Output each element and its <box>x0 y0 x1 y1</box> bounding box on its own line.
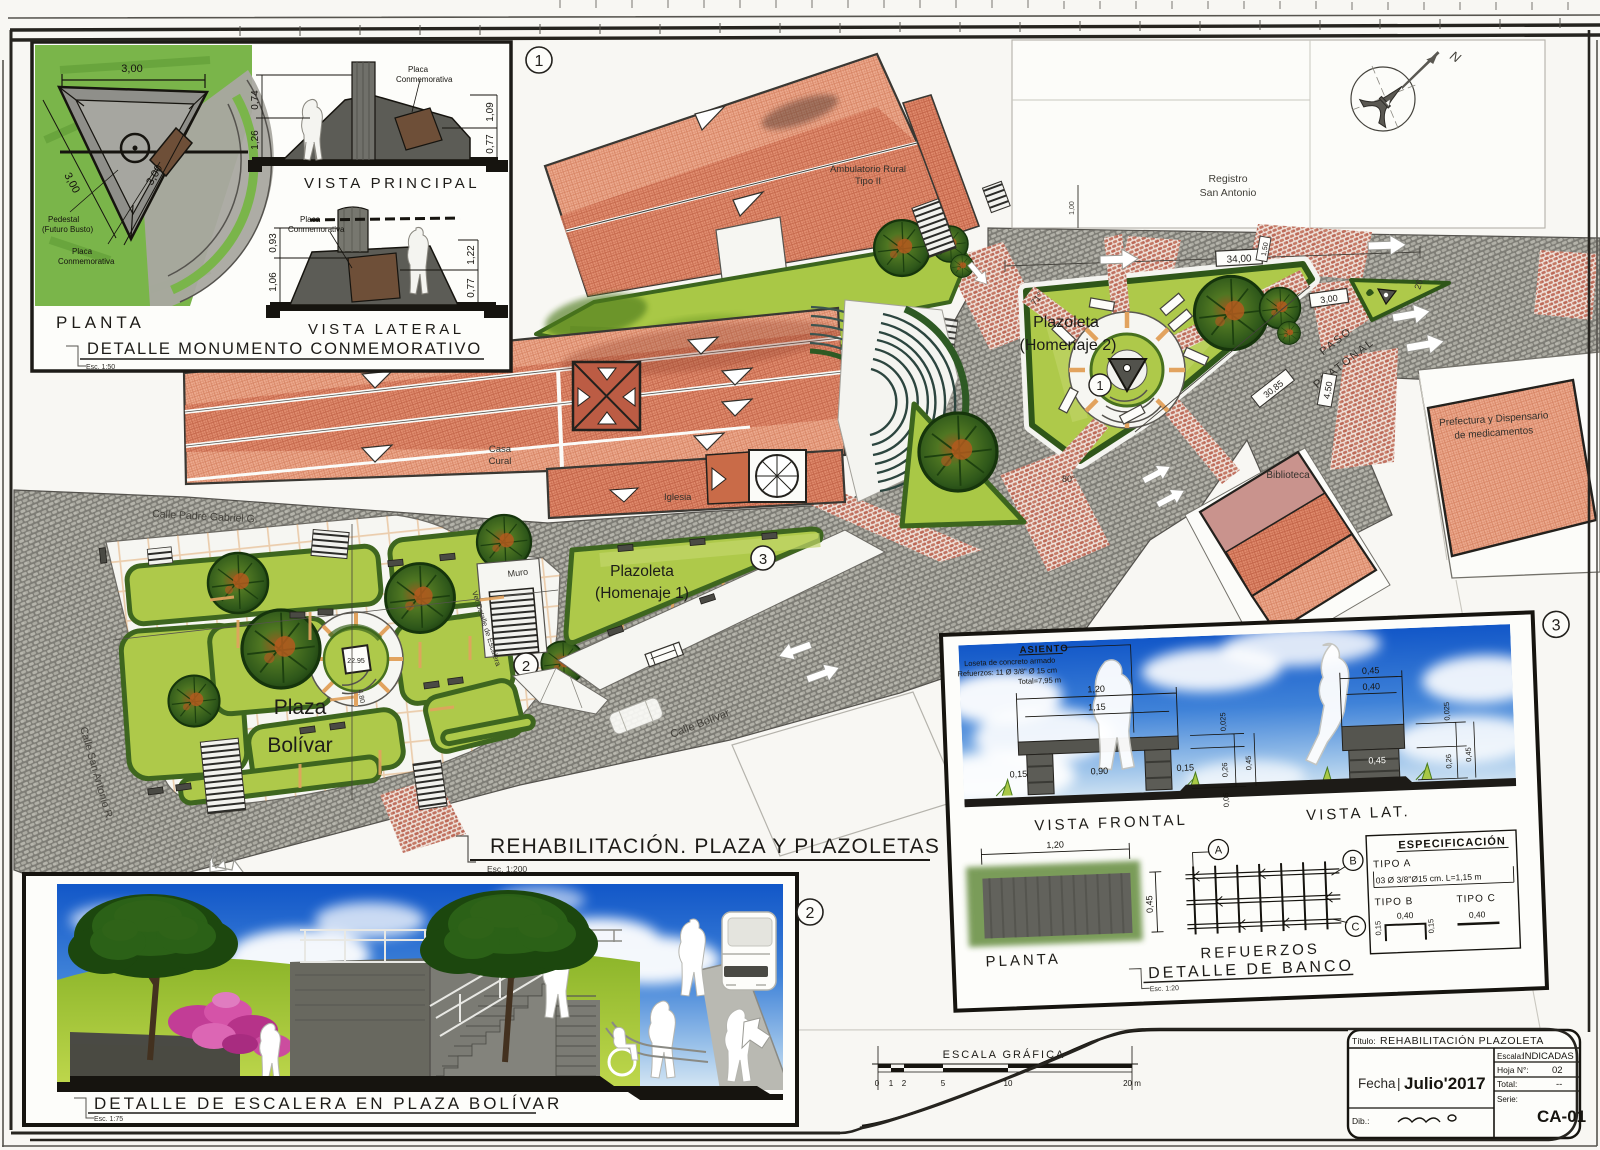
svg-text:1: 1 <box>535 53 544 70</box>
svg-text:1,15: 1,15 <box>1088 702 1106 713</box>
svg-text:Plazoleta: Plazoleta <box>1033 314 1099 331</box>
svg-text:0,15: 0,15 <box>1373 921 1383 936</box>
svg-text:0,15: 0,15 <box>1426 919 1436 934</box>
svg-text:0,15: 0,15 <box>1009 769 1027 780</box>
svg-text:20 m: 20 m <box>1123 1079 1141 1088</box>
svg-text:--: -- <box>1556 1079 1562 1090</box>
svg-text:Placa: Placa <box>408 65 429 74</box>
svg-text:Esc. 1:200: Esc. 1:200 <box>487 864 527 874</box>
svg-text:Pedestal: Pedestal <box>48 215 79 224</box>
svg-text:0,45: 0,45 <box>1362 665 1380 676</box>
svg-text:22.95: 22.95 <box>347 658 365 665</box>
svg-text:DETALLE DE ESCALERA EN PLAZA B: DETALLE DE ESCALERA EN PLAZA BOLÍVAR <box>94 1094 562 1113</box>
svg-text:1,09: 1,09 <box>485 102 496 122</box>
svg-text:0,74: 0,74 <box>250 90 261 110</box>
svg-text:0,05: 0,05 <box>1221 792 1231 807</box>
svg-text:Total:: Total: <box>1497 1079 1517 1089</box>
svg-text:Conmemorativa: Conmemorativa <box>396 75 453 84</box>
svg-text:2: 2 <box>806 905 815 922</box>
svg-text:1: 1 <box>1096 378 1103 393</box>
svg-text:Conmemorativa: Conmemorativa <box>58 257 115 266</box>
svg-text:02: 02 <box>1552 1065 1563 1076</box>
svg-text:3,00: 3,00 <box>121 63 142 75</box>
svg-text:Esc. 1:75: Esc. 1:75 <box>94 1116 123 1123</box>
svg-text:3: 3 <box>1551 617 1561 634</box>
svg-text:1,00: 1,00 <box>1069 201 1076 215</box>
svg-text:Cural: Cural <box>489 456 512 467</box>
svg-text:Fecha: Fecha <box>1358 1076 1396 1091</box>
svg-text:1,22: 1,22 <box>466 245 477 265</box>
svg-text:0,77: 0,77 <box>485 134 496 154</box>
svg-text:Casa: Casa <box>489 444 512 455</box>
svg-text:1,20: 1,20 <box>1046 839 1064 850</box>
svg-text:REHABILITACIÓN. PLAZA Y PLAZOL: REHABILITACIÓN. PLAZA Y PLAZOLETAS <box>490 835 940 858</box>
svg-text:REHABILITACIÓN PLAZOLETA: REHABILITACIÓN PLAZOLETA <box>1380 1034 1544 1047</box>
svg-text:Placa: Placa <box>72 247 93 256</box>
svg-text:Título:: Título: <box>1352 1036 1376 1046</box>
svg-text:Serie:: Serie: <box>1497 1095 1518 1104</box>
svg-text:34,00: 34,00 <box>1226 253 1252 265</box>
svg-text:Biblioteca: Biblioteca <box>1266 470 1310 481</box>
svg-text:VISTA LATERAL: VISTA LATERAL <box>308 321 465 338</box>
svg-text:Plazoleta: Plazoleta <box>610 563 674 580</box>
svg-text:PLANTA: PLANTA <box>56 313 145 332</box>
svg-text:1,26: 1,26 <box>250 130 261 150</box>
svg-text:0,45: 0,45 <box>1244 756 1254 771</box>
svg-text:Iglesia: Iglesia <box>664 492 692 503</box>
svg-text:Dib.:: Dib.: <box>1352 1116 1369 1126</box>
svg-text:(Homenaje 2): (Homenaje 2) <box>1020 337 1117 354</box>
svg-text:VISTA PRINCIPAL: VISTA PRINCIPAL <box>304 175 480 192</box>
svg-text:0,40: 0,40 <box>1469 909 1486 920</box>
svg-text:1,06: 1,06 <box>268 272 279 292</box>
svg-text:0,93: 0,93 <box>268 233 279 253</box>
svg-text:TIPO C: TIPO C <box>1456 893 1496 906</box>
svg-text:B: B <box>1349 855 1357 867</box>
svg-text:Registro: Registro <box>1208 173 1247 185</box>
svg-text:0,77: 0,77 <box>466 278 477 298</box>
svg-text:5: 5 <box>941 1079 946 1088</box>
svg-text:San Antonio: San Antonio <box>1200 187 1257 199</box>
svg-text:2: 2 <box>902 1079 907 1088</box>
svg-text:0,15: 0,15 <box>1176 762 1194 773</box>
svg-text:0,45: 0,45 <box>1144 895 1155 913</box>
svg-text:1,20: 1,20 <box>1087 684 1105 695</box>
svg-text:0,40: 0,40 <box>1362 681 1380 692</box>
svg-text:INDICADAS: INDICADAS <box>1522 1051 1574 1062</box>
svg-text:(Homenaje 1): (Homenaje 1) <box>595 585 689 602</box>
svg-text:Julio'2017: Julio'2017 <box>1404 1074 1486 1093</box>
svg-text:Esc. 1:50: Esc. 1:50 <box>86 364 115 371</box>
svg-text:0,025: 0,025 <box>1218 712 1228 731</box>
svg-text:Escala:: Escala: <box>1497 1052 1523 1061</box>
svg-text:PLANTA: PLANTA <box>985 951 1061 971</box>
svg-text:2: 2 <box>522 658 530 675</box>
svg-text:0,45: 0,45 <box>1368 755 1386 766</box>
svg-text:1: 1 <box>889 1079 894 1088</box>
svg-text:Total=7,95 m: Total=7,95 m <box>1018 675 1061 686</box>
svg-text:TIPO A: TIPO A <box>1373 858 1412 870</box>
svg-text:0,26: 0,26 <box>1220 762 1230 777</box>
svg-text:DETALLE MONUMENTO CONMEMORATIV: DETALLE MONUMENTO CONMEMORATIVO <box>87 340 482 358</box>
svg-text:Hoja N°:: Hoja N°: <box>1497 1065 1529 1075</box>
svg-text:0: 0 <box>875 1079 880 1088</box>
svg-text:Placa: Placa <box>300 215 321 224</box>
svg-text:CA-01: CA-01 <box>1537 1107 1586 1126</box>
svg-text:Bolívar: Bolívar <box>267 734 332 757</box>
svg-text:0,90: 0,90 <box>1090 766 1108 777</box>
svg-text:Plaza: Plaza <box>274 696 327 719</box>
svg-text:|: | <box>1397 1076 1401 1091</box>
svg-text:Tipo II: Tipo II <box>855 176 881 187</box>
svg-text:A: A <box>1215 844 1223 856</box>
svg-text:Esc. 1:20: Esc. 1:20 <box>1150 985 1180 993</box>
svg-text:ESCALA GRÁFICA: ESCALA GRÁFICA <box>943 1048 1066 1061</box>
svg-text:0,26: 0,26 <box>1444 754 1454 769</box>
svg-text:Conmemorativa: Conmemorativa <box>288 225 345 234</box>
svg-text:TIPO B: TIPO B <box>1374 896 1413 908</box>
svg-text:0,025: 0,025 <box>1442 702 1452 721</box>
svg-text:3: 3 <box>759 551 767 568</box>
svg-text:80°: 80° <box>1062 474 1076 484</box>
svg-text:(Futuro Busto): (Futuro Busto) <box>42 225 93 234</box>
svg-text:C: C <box>1351 921 1359 933</box>
svg-text:0,45: 0,45 <box>1464 747 1474 762</box>
svg-text:0,40: 0,40 <box>1397 910 1414 921</box>
svg-text:Ambulatorio Rural: Ambulatorio Rural <box>830 164 906 175</box>
